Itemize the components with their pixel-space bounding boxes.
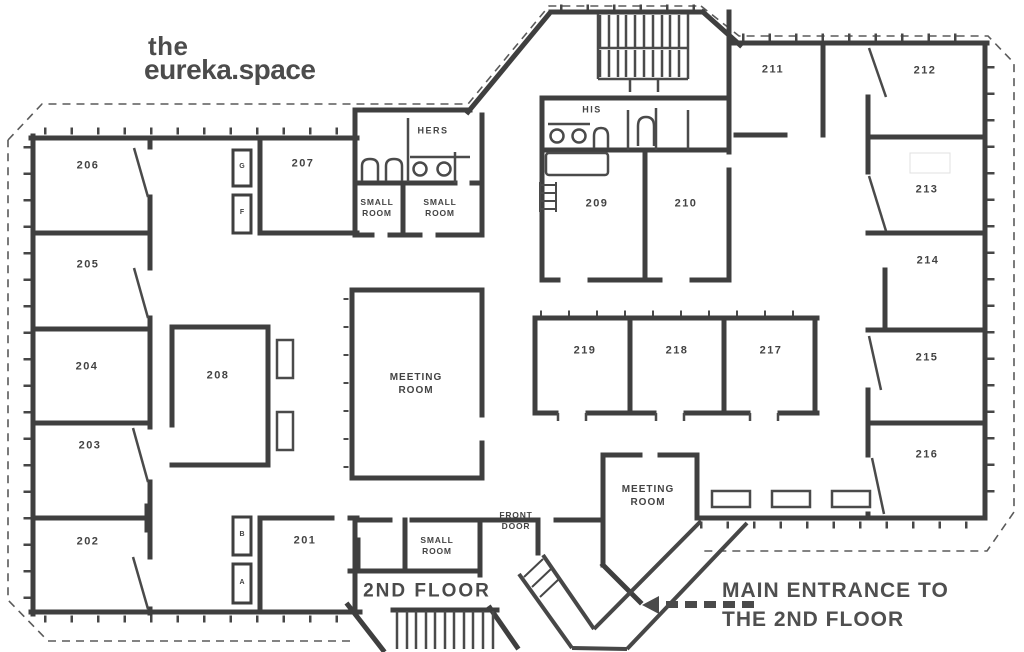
room-label-215: 215	[916, 351, 939, 364]
small-room-label-top-right: SMALL ROOM	[419, 197, 461, 219]
room-label-203: 203	[79, 439, 102, 452]
room-label-209: 209	[586, 197, 609, 210]
stairs-north	[598, 14, 688, 92]
room-label-213: 213	[916, 183, 939, 196]
room-label-205: 205	[77, 258, 100, 271]
room-label-210: 210	[675, 197, 698, 210]
floorplan: the eureka.space 206 207 205 204 203 202…	[0, 0, 1024, 652]
room-label-207: 207	[292, 157, 315, 170]
small-room-label-bottom: SMALL ROOM	[416, 535, 458, 557]
main-entrance-note: MAIN ENTRANCE TO THE 2ND FLOOR	[722, 576, 984, 635]
meeting-room-label-south: MEETING ROOM	[620, 483, 676, 509]
logo-line-2: eureka.space	[144, 56, 315, 84]
room-label-218: 218	[666, 344, 689, 357]
utility-box-letter-f: F	[240, 209, 244, 217]
room-label-202: 202	[77, 535, 100, 548]
room-label-214: 214	[917, 254, 940, 267]
front-door-label: FRONT DOOR	[496, 510, 536, 532]
small-room-label-top-left: SMALL ROOM	[356, 197, 398, 219]
room-label-206: 206	[77, 159, 100, 172]
wc-fixtures	[362, 108, 688, 183]
walls-main	[31, 12, 987, 650]
room-label-217: 217	[760, 344, 783, 357]
room-label-219: 219	[574, 344, 597, 357]
floorplan-walls-svg	[0, 0, 1024, 652]
room-label-216: 216	[916, 448, 939, 461]
room-label-208: 208	[207, 369, 230, 382]
entrance-walkway	[519, 521, 747, 649]
outer-boundary-dashed	[8, 6, 1014, 641]
whiteboard	[910, 153, 950, 173]
room-label-211: 211	[762, 63, 784, 76]
stairs-south	[397, 611, 493, 649]
room-label-212: 212	[914, 64, 937, 77]
room-label-204: 204	[76, 360, 99, 373]
wc-his-label: HIS	[582, 105, 602, 116]
meeting-room-label-center: MEETING ROOM	[388, 371, 444, 397]
utility-box-letter-b: B	[239, 531, 244, 539]
wc-hers-label: HERS	[417, 126, 448, 137]
floor-title: 2ND FLOOR	[363, 581, 491, 604]
utility-box-letter-a: A	[239, 579, 244, 587]
utility-box-letter-g: G	[239, 163, 244, 171]
room-label-201: 201	[294, 534, 317, 547]
